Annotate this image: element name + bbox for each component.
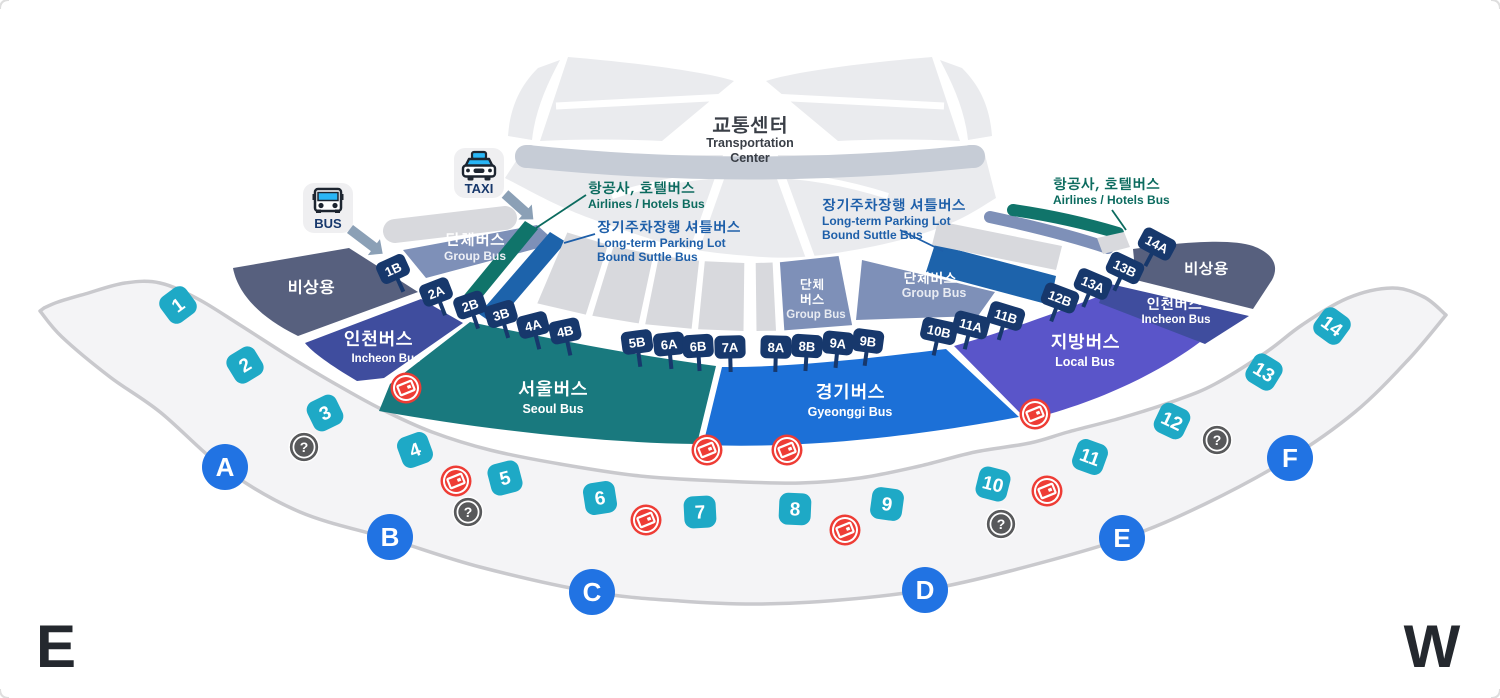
- svg-text:A: A: [216, 452, 235, 482]
- svg-text:8B: 8B: [798, 338, 816, 354]
- svg-text:Long-term Parking Lot: Long-term Parking Lot: [597, 236, 726, 250]
- svg-text:E: E: [36, 613, 76, 680]
- svg-text:Bound Suttle Bus: Bound Suttle Bus: [597, 250, 698, 264]
- svg-text:W: W: [1404, 613, 1461, 680]
- svg-text:Center: Center: [730, 151, 770, 165]
- svg-text:Bound Suttle Bus: Bound Suttle Bus: [822, 228, 923, 242]
- svg-text:?: ?: [997, 516, 1006, 532]
- svg-text:Gyeonggi Bus: Gyeonggi Bus: [808, 405, 893, 419]
- svg-text:?: ?: [300, 439, 309, 455]
- svg-text:Group Bus: Group Bus: [902, 286, 967, 300]
- svg-text:TAXI: TAXI: [465, 181, 494, 196]
- svg-text:Transportation: Transportation: [706, 136, 794, 150]
- svg-text:Seoul Bus: Seoul Bus: [522, 402, 583, 416]
- svg-text:Group Bus: Group Bus: [786, 309, 845, 321]
- svg-text:BUS: BUS: [314, 216, 342, 231]
- svg-text:Airlines / Hotels Bus: Airlines / Hotels Bus: [588, 197, 705, 211]
- svg-text:7A: 7A: [722, 340, 740, 355]
- svg-text:Incheon Bus: Incheon Bus: [1141, 314, 1210, 326]
- svg-text:Long-term Parking Lot: Long-term Parking Lot: [822, 214, 951, 228]
- svg-text:F: F: [1282, 443, 1298, 473]
- svg-text:8A: 8A: [767, 340, 785, 355]
- svg-text:B: B: [381, 522, 400, 552]
- svg-text:9A: 9A: [829, 335, 848, 352]
- svg-text:Local Bus: Local Bus: [1055, 355, 1115, 369]
- svg-text:?: ?: [1213, 432, 1222, 448]
- svg-text:D: D: [916, 575, 935, 605]
- svg-text:E: E: [1113, 523, 1130, 553]
- svg-text:6B: 6B: [689, 338, 707, 354]
- svg-text:?: ?: [464, 504, 473, 520]
- svg-text:C: C: [583, 577, 602, 607]
- svg-text:Group Bus: Group Bus: [444, 249, 506, 263]
- svg-text:6A: 6A: [660, 336, 679, 353]
- svg-text:9B: 9B: [859, 333, 877, 350]
- svg-text:Airlines / Hotels Bus: Airlines / Hotels Bus: [1053, 193, 1170, 207]
- svg-text:5B: 5B: [628, 334, 646, 351]
- svg-text:Incheon Bus: Incheon Bus: [351, 353, 420, 365]
- svg-text:7: 7: [694, 502, 706, 524]
- svg-text:8: 8: [789, 499, 800, 520]
